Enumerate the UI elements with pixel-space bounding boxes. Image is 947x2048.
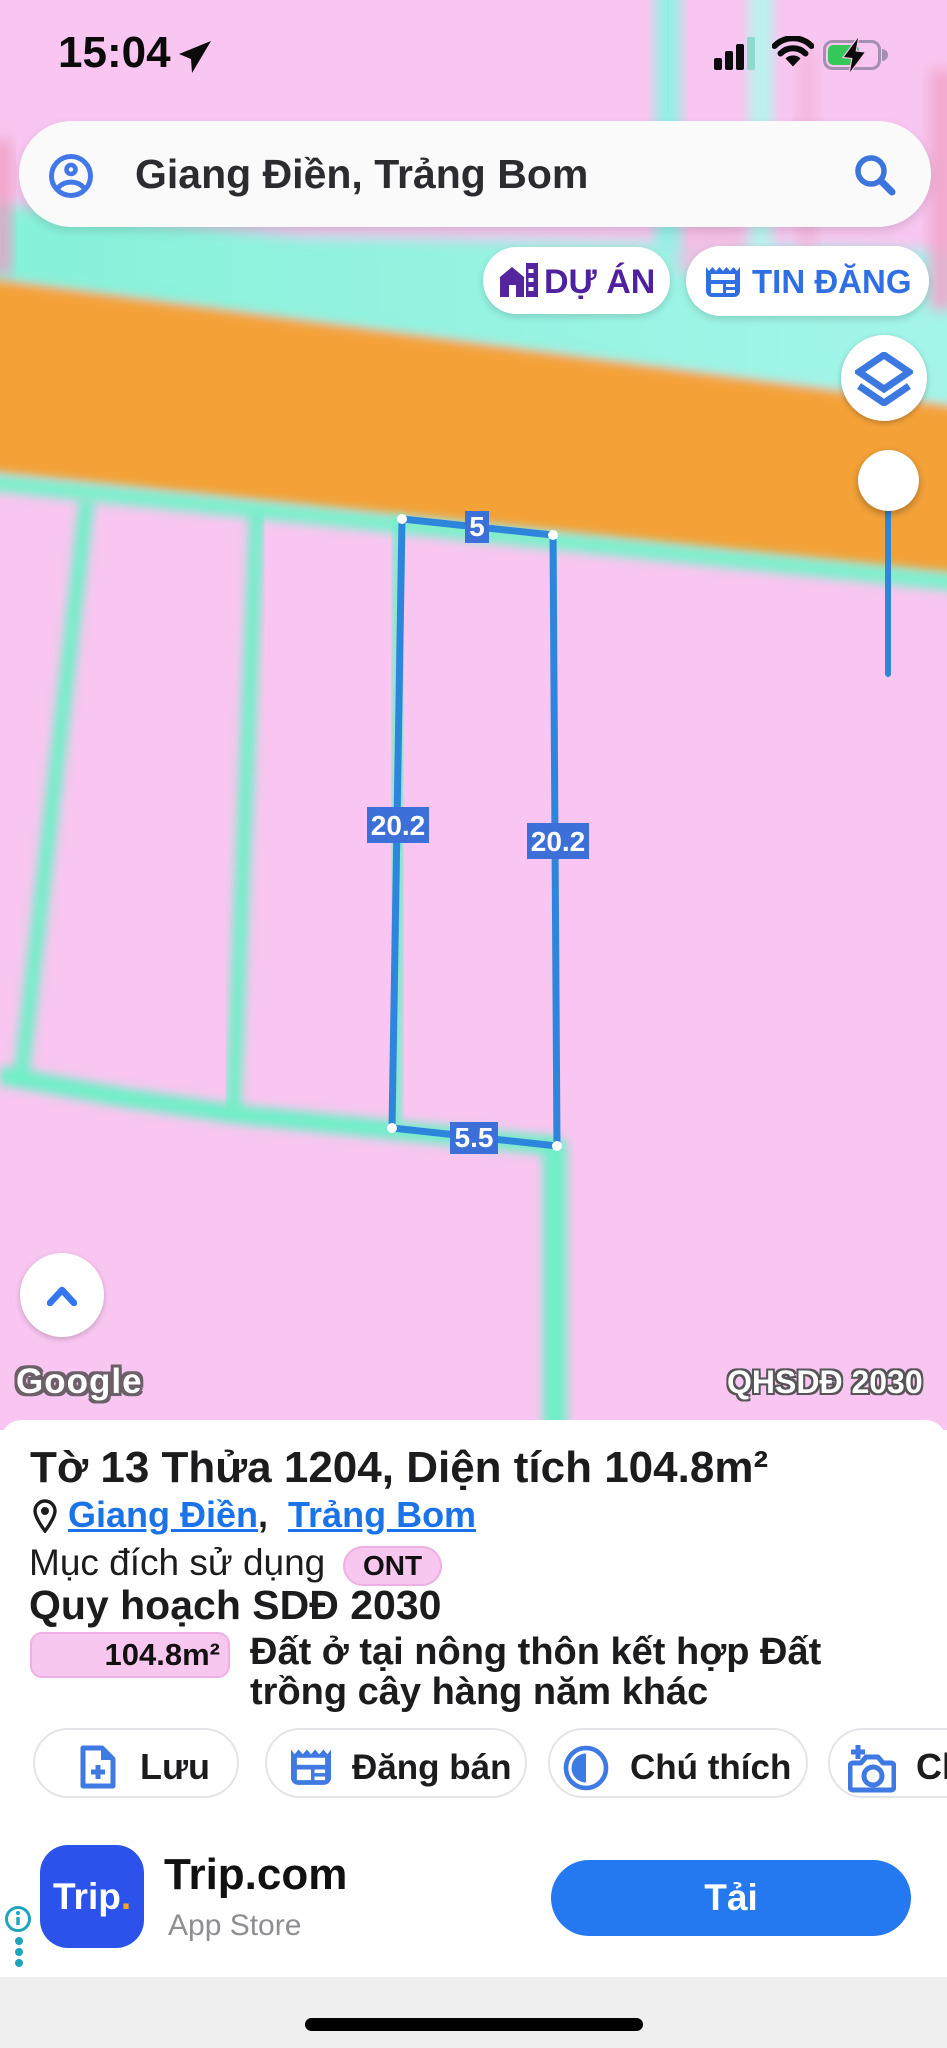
svg-text:5.5: 5.5	[455, 1122, 494, 1153]
svg-text:20.2: 20.2	[371, 810, 426, 841]
svg-text:20.2: 20.2	[531, 826, 586, 857]
svg-text:5: 5	[469, 511, 485, 542]
